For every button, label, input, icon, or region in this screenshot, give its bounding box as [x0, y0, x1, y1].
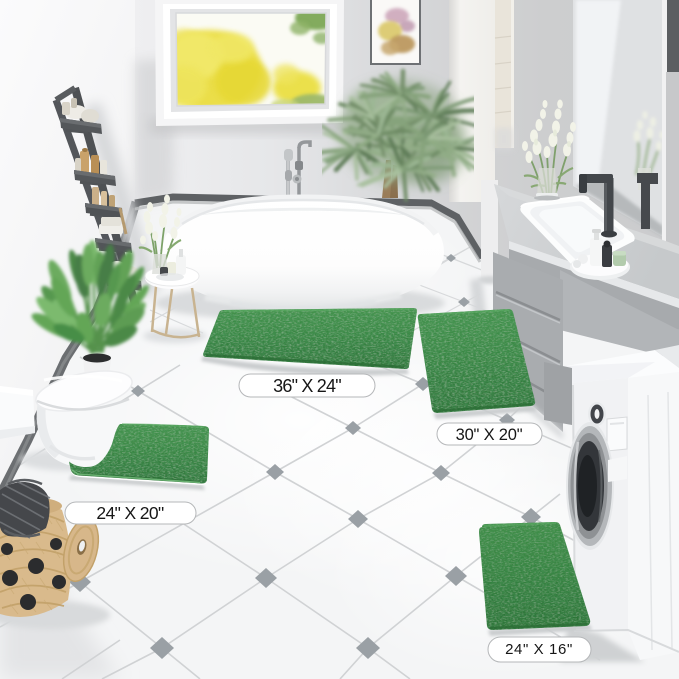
svg-text:30" X 20": 30" X 20" — [456, 426, 523, 444]
svg-text:24" X 20": 24" X 20" — [96, 503, 164, 523]
svg-text:24" X 16": 24" X 16" — [505, 641, 573, 658]
svg-text:36" X 24": 36" X 24" — [273, 376, 341, 396]
